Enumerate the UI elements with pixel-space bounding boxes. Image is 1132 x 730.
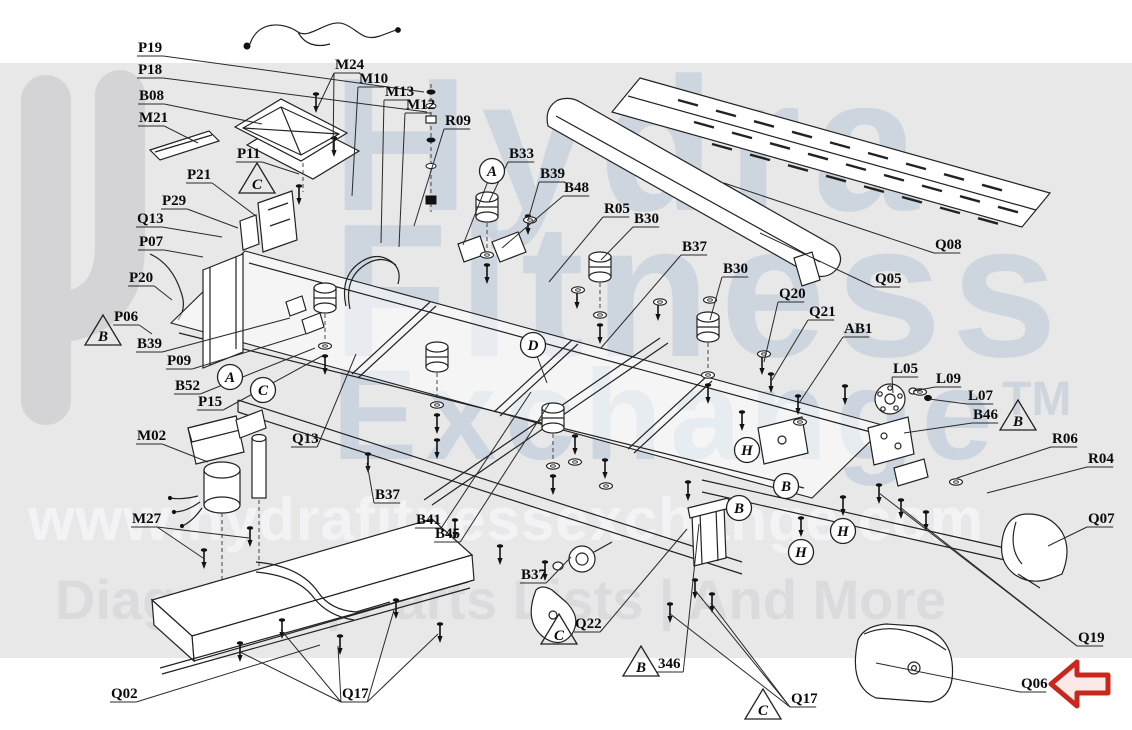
svg-text:B46: B46 — [973, 407, 999, 423]
svg-text:B: B — [780, 479, 791, 495]
svg-text:B52: B52 — [175, 378, 200, 394]
svg-text:B: B — [97, 329, 108, 345]
svg-text:P07: P07 — [139, 234, 164, 250]
screenshot-root: Hydra Fitness Exchange TM www.hydrafitne… — [0, 0, 1132, 730]
part-label-B39-29: B39 — [528, 166, 565, 220]
part-label-M21-3: M21 — [138, 110, 198, 143]
front-roller — [542, 542, 612, 581]
red-arrow-annotation — [1051, 662, 1108, 706]
triangle-marker-B-4: B — [623, 646, 659, 676]
belt-tray-q02 — [152, 519, 474, 674]
svg-text:Q06: Q06 — [1021, 676, 1048, 692]
svg-text:B: B — [635, 660, 646, 676]
svg-text:Q21: Q21 — [809, 304, 836, 320]
part-label-Q17-50: Q17 — [669, 589, 818, 707]
end-cap-q06 — [855, 624, 952, 702]
svg-text:C: C — [252, 177, 263, 193]
svg-text:P20: P20 — [129, 270, 153, 286]
svg-text:B39: B39 — [540, 166, 565, 182]
part-label-B45-25: B45 — [434, 404, 549, 542]
circle-marker-H-7: H — [831, 519, 856, 544]
end-cap-q07 — [1002, 514, 1067, 588]
flywheel-l05 — [875, 384, 931, 414]
svg-text:P29: P29 — [162, 193, 186, 209]
part-label-L07-42: L07 — [929, 388, 994, 404]
svg-text:Q05: Q05 — [875, 271, 902, 287]
part-label-B30-34: B30 — [710, 261, 748, 320]
circle-marker-H-8: H — [789, 540, 814, 565]
svg-text:Q17: Q17 — [791, 691, 818, 707]
svg-text:M27: M27 — [132, 511, 162, 527]
part-label-P07-13: P07 — [138, 234, 203, 257]
part-label-P29-11: P29 — [161, 193, 238, 228]
svg-text:R05: R05 — [604, 201, 630, 217]
circle-marker-B-5: B — [774, 474, 799, 499]
svg-text:C: C — [758, 703, 769, 719]
svg-text:346: 346 — [658, 656, 681, 672]
svg-text:M02: M02 — [137, 428, 166, 444]
svg-text:C: C — [554, 628, 565, 644]
circle-marker-A-1: A — [218, 365, 243, 390]
part-label-Q20-37: Q20 — [764, 286, 806, 362]
part-label-P06-15: P06 — [113, 309, 152, 334]
svg-text:B48: B48 — [564, 180, 589, 196]
svg-text:Q07: Q07 — [1088, 511, 1115, 527]
motor-m02 — [168, 410, 266, 580]
svg-text:P21: P21 — [187, 167, 211, 183]
svg-text:M21: M21 — [139, 110, 168, 126]
svg-text:Q13: Q13 — [292, 431, 319, 447]
svg-text:Q17: Q17 — [342, 686, 369, 702]
svg-text:B45: B45 — [435, 526, 460, 542]
svg-text:Q13: Q13 — [137, 211, 164, 227]
svg-text:P11: P11 — [237, 146, 260, 162]
svg-text:H: H — [794, 545, 808, 561]
wire-harness — [244, 23, 400, 49]
svg-text:Q02: Q02 — [111, 686, 138, 702]
svg-text:B37: B37 — [682, 239, 708, 255]
svg-text:H: H — [740, 443, 754, 459]
svg-text:D: D — [527, 338, 539, 354]
part-label-Q19-51: Q19 — [879, 493, 1105, 646]
part-label-P20-14: P20 — [128, 270, 172, 300]
svg-text:M10: M10 — [359, 71, 388, 87]
triangle-marker-C-5: C — [745, 689, 781, 719]
svg-text:M12: M12 — [406, 97, 435, 113]
svg-text:B: B — [733, 501, 744, 517]
svg-text:P19: P19 — [138, 40, 162, 56]
svg-text:C: C — [258, 383, 269, 399]
svg-text:B30: B30 — [634, 211, 659, 227]
svg-text:Q19: Q19 — [1078, 630, 1105, 646]
diagram-canvas: P19P18B08M21M24M10M13M12R09P11P21P29Q13P… — [0, 0, 1132, 730]
part-label-B37-33: B37 — [601, 239, 708, 348]
circle-marker-C-2: C — [251, 378, 276, 403]
part-label-B30-32: B30 — [601, 211, 659, 260]
svg-text:R09: R09 — [445, 113, 471, 129]
svg-text:B: B — [1012, 414, 1023, 430]
part-label-M27-22: M27 — [131, 511, 249, 558]
svg-text:B37: B37 — [375, 487, 401, 503]
svg-text:P18: P18 — [138, 62, 162, 78]
circle-marker-B-6: B — [727, 496, 752, 521]
triangle-marker-C-0: C — [239, 163, 275, 193]
svg-text:H: H — [836, 524, 850, 540]
part-label-B46-43: B46 — [904, 407, 999, 433]
svg-text:A: A — [486, 164, 497, 180]
svg-text:R04: R04 — [1088, 451, 1114, 467]
svg-text:L05: L05 — [893, 361, 918, 377]
svg-text:B33: B33 — [509, 146, 534, 162]
svg-text:L07: L07 — [968, 388, 994, 404]
circle-marker-H-4: H — [735, 438, 760, 463]
svg-text:B30: B30 — [723, 261, 748, 277]
svg-text:Q08: Q08 — [935, 237, 962, 253]
part-label-R06-44: R06 — [957, 431, 1078, 478]
svg-text:P09: P09 — [167, 353, 191, 369]
part-label-L09-41: L09 — [914, 371, 961, 391]
svg-text:B37: B37 — [521, 567, 547, 583]
slat-board-q08 — [612, 78, 1050, 227]
svg-text:Q22: Q22 — [575, 616, 602, 632]
part-label-B37-23: B37 — [367, 463, 401, 503]
svg-text:B39: B39 — [137, 336, 162, 352]
part-label-AB1-39: AB1 — [799, 321, 872, 403]
part-label-P21-10: P21 — [186, 167, 256, 216]
svg-text:AB1: AB1 — [844, 321, 872, 337]
svg-text:P06: P06 — [114, 309, 139, 325]
svg-text:L09: L09 — [936, 371, 961, 387]
svg-text:R06: R06 — [1052, 431, 1078, 447]
svg-text:Q20: Q20 — [779, 286, 806, 302]
svg-text:B08: B08 — [139, 88, 164, 104]
part-label-R09-8: R09 — [414, 113, 471, 226]
svg-text:A: A — [224, 370, 235, 386]
svg-text:P15: P15 — [198, 394, 222, 410]
part-label-R04-45: R04 — [987, 451, 1114, 493]
triangle-marker-B-2: B — [1000, 400, 1036, 430]
part-label-Q21-38: Q21 — [772, 304, 836, 380]
deck-frame — [171, 232, 886, 574]
